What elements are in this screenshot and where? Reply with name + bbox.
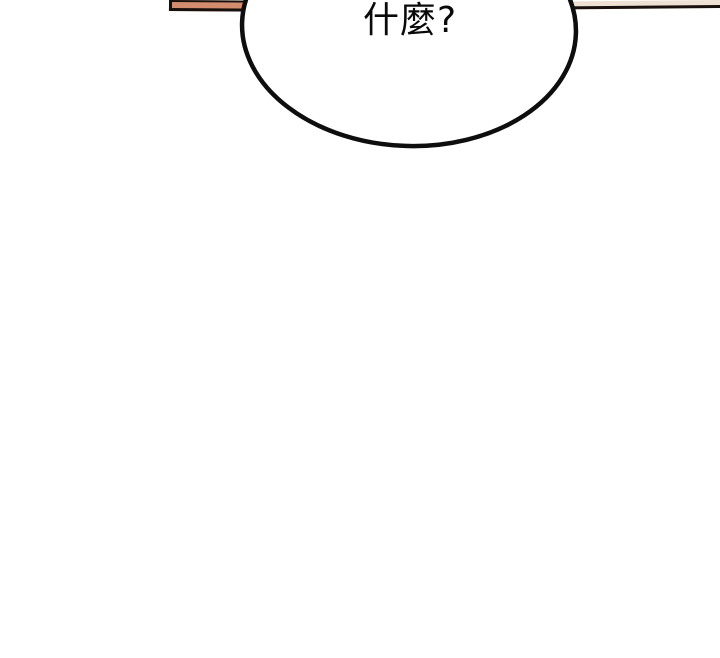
comic-panel: 什麼? (0, 0, 720, 658)
speech-bubble-text: 什麼? (330, 1, 490, 41)
